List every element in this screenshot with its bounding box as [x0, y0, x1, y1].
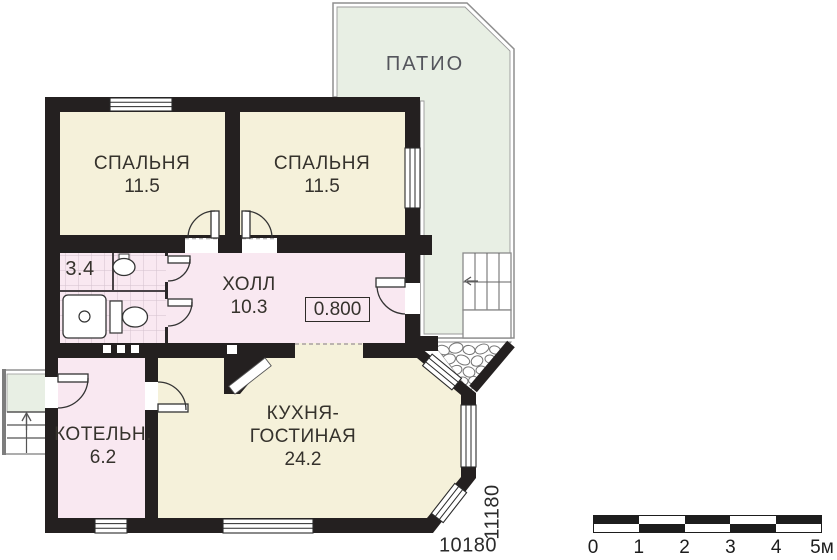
scale-bar: 0 1 2 3 4 5м — [593, 515, 822, 557]
elevation-mark-value: 0.800 — [314, 299, 362, 321]
window-bedroom-left-top — [110, 98, 172, 111]
scale-tick-4: 4 — [771, 537, 782, 559]
scale-bar-ticks: 0 1 2 3 4 5м — [593, 533, 822, 557]
porch-steps-symbol — [2, 369, 48, 455]
room-bedroom-left — [60, 112, 225, 235]
scale-tick-5: 5м — [810, 537, 834, 559]
room-kitchen-living — [158, 358, 461, 518]
window-kitchen-bottom — [223, 519, 313, 533]
window-bay-right — [461, 405, 476, 467]
bathroom-zone — [60, 253, 167, 343]
wall-vents — [103, 345, 139, 353]
elevation-mark-box: 0.800 — [305, 297, 370, 322]
open-passage — [295, 343, 363, 358]
window-boiler-bottom — [95, 519, 127, 533]
window-bedroom-right-side — [405, 148, 420, 208]
wall-pier — [395, 235, 432, 255]
entry-landing — [463, 310, 511, 338]
shower-symbol — [63, 295, 106, 338]
dimension-vertical: 11180 — [482, 484, 505, 539]
scale-tick-1: 1 — [634, 537, 645, 559]
scale-bar-checker — [593, 515, 822, 533]
floor-plan-drawing — [0, 0, 837, 560]
exterior-staircase-symbol — [463, 253, 511, 310]
scale-tick-2: 2 — [679, 537, 690, 559]
scale-tick-0: 0 — [588, 537, 599, 559]
room-bedroom-right — [240, 112, 405, 235]
scale-tick-3: 3 — [725, 537, 736, 559]
floor-plan-page: ПАТИО СПАЛЬНЯ 11.5 СПАЛЬНЯ 11.5 3.4 ХОЛЛ… — [0, 0, 837, 560]
